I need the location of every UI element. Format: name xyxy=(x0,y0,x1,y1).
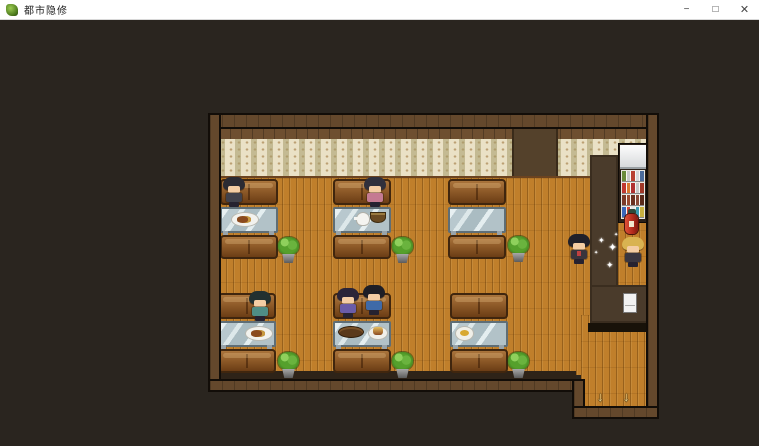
plant-pot xyxy=(395,254,410,263)
shelf-item xyxy=(640,171,644,181)
npc-face xyxy=(254,300,266,307)
game-viewport[interactable]: ✦✦✦✦✦↓↓ xyxy=(0,20,759,446)
shelf-item xyxy=(636,195,640,205)
npc-shirt xyxy=(625,253,641,262)
plant-leaves xyxy=(392,237,413,255)
booth-couch-bottom xyxy=(450,349,508,373)
potted-plant xyxy=(392,352,413,378)
shelf-item xyxy=(627,183,631,193)
kitchen-door-opening xyxy=(512,129,558,178)
shelf-item xyxy=(640,183,644,193)
plant-leaves xyxy=(508,236,529,254)
app-icon xyxy=(6,4,18,16)
plant-leaves xyxy=(278,352,299,370)
npc-shirt xyxy=(226,193,242,202)
booth-couch-top xyxy=(448,179,506,205)
shelf-item xyxy=(636,183,640,193)
shelf-row xyxy=(622,195,644,206)
npc-shirt xyxy=(252,307,268,316)
map-frame-bottom xyxy=(210,381,583,390)
npc-face xyxy=(369,186,381,193)
potted-plant xyxy=(278,352,299,378)
shelf-item xyxy=(627,171,631,181)
window-titlebar: 都市隐修 − □ ✕ xyxy=(0,0,759,20)
shelf-item xyxy=(622,171,626,181)
booth-couch-top xyxy=(450,293,508,319)
fire-extinguisher xyxy=(622,209,642,235)
booth-couch-bottom xyxy=(448,235,506,259)
plant-leaves xyxy=(278,237,299,255)
shelf-item xyxy=(636,171,640,181)
sparkle-star: ✦ xyxy=(594,251,598,256)
sparkle-star: ✦ xyxy=(608,243,617,254)
minimize-button[interactable]: − xyxy=(672,0,701,19)
potted-plant xyxy=(392,237,413,263)
potted-plant xyxy=(508,352,529,378)
food-teapot xyxy=(357,213,369,225)
booth-couch-bottom xyxy=(333,235,391,259)
shelf-row xyxy=(622,183,644,194)
top-wall-wood-band xyxy=(219,127,648,139)
shelf-item xyxy=(640,195,644,205)
npc-character xyxy=(567,234,591,264)
npc-shirt xyxy=(366,301,382,310)
npc-character xyxy=(621,237,645,267)
dining-table xyxy=(448,207,506,233)
npc-face xyxy=(627,246,639,253)
shelf-item xyxy=(631,183,635,193)
plant-pot xyxy=(395,369,410,378)
plant-pot xyxy=(511,369,526,378)
npc-character xyxy=(222,177,246,207)
window-controls: − □ ✕ xyxy=(672,0,759,19)
shelf-item xyxy=(631,195,635,205)
npc-character xyxy=(362,285,386,315)
food-plate-meat xyxy=(246,327,272,340)
npc-character xyxy=(363,177,387,207)
sparkle-star: ✦ xyxy=(598,237,605,245)
dark-counter-horizontal xyxy=(590,285,648,323)
npc-face xyxy=(573,243,585,250)
plant-pot xyxy=(281,254,296,263)
shelf-canopy xyxy=(620,145,646,169)
npc-face xyxy=(228,186,240,193)
plant-pot xyxy=(281,369,296,378)
sparkle-star: ✦ xyxy=(606,261,614,270)
window-title: 都市隐修 xyxy=(24,2,68,17)
restaurant-map[interactable]: ✦✦✦✦✦↓↓ xyxy=(210,115,657,417)
exit-arrow: ↓ xyxy=(623,389,630,404)
food-round-plate xyxy=(456,327,473,340)
plant-leaves xyxy=(508,352,529,370)
plant-leaves xyxy=(392,352,413,370)
map-frame-top xyxy=(210,115,657,127)
booth-couch-bottom xyxy=(218,349,276,373)
plant-pot xyxy=(511,253,526,262)
extinguisher-label xyxy=(629,221,634,227)
shelf-item xyxy=(622,183,626,193)
map-frame-right xyxy=(648,115,657,417)
maximize-button[interactable]: □ xyxy=(701,0,730,19)
shelf-row xyxy=(622,171,644,182)
npc-legs xyxy=(369,310,379,315)
counter-base-trim xyxy=(588,323,652,332)
small-fridge xyxy=(623,293,637,313)
npc-legs xyxy=(628,262,638,267)
potted-plant xyxy=(278,237,299,263)
npc-accent xyxy=(577,251,581,256)
npc-legs xyxy=(343,313,353,318)
npc-face xyxy=(368,294,380,301)
booth-couch-bottom xyxy=(333,349,391,373)
npc-face xyxy=(342,297,354,304)
npc-character xyxy=(336,288,360,318)
map-frame-exit-bottom xyxy=(574,408,657,417)
sparkle-star: ✦ xyxy=(614,233,618,238)
npc-shirt xyxy=(367,193,383,202)
food-plate-meat xyxy=(232,213,258,226)
shelf-item xyxy=(627,195,631,205)
close-button[interactable]: ✕ xyxy=(730,0,759,19)
baseboard-line xyxy=(219,176,648,178)
npc-shirt xyxy=(340,304,356,313)
shelf-item xyxy=(631,171,635,181)
food-fish xyxy=(339,327,363,337)
exit-arrow: ↓ xyxy=(597,389,604,404)
food-bowl xyxy=(371,213,385,222)
potted-plant xyxy=(508,236,529,262)
booth-couch-bottom xyxy=(220,235,278,259)
npc-legs xyxy=(574,259,584,264)
map-frame-left xyxy=(210,115,219,390)
shelf-item xyxy=(622,195,626,205)
npc-character xyxy=(248,291,272,321)
food-burger xyxy=(369,327,387,339)
wallpaper-wall xyxy=(219,139,648,178)
